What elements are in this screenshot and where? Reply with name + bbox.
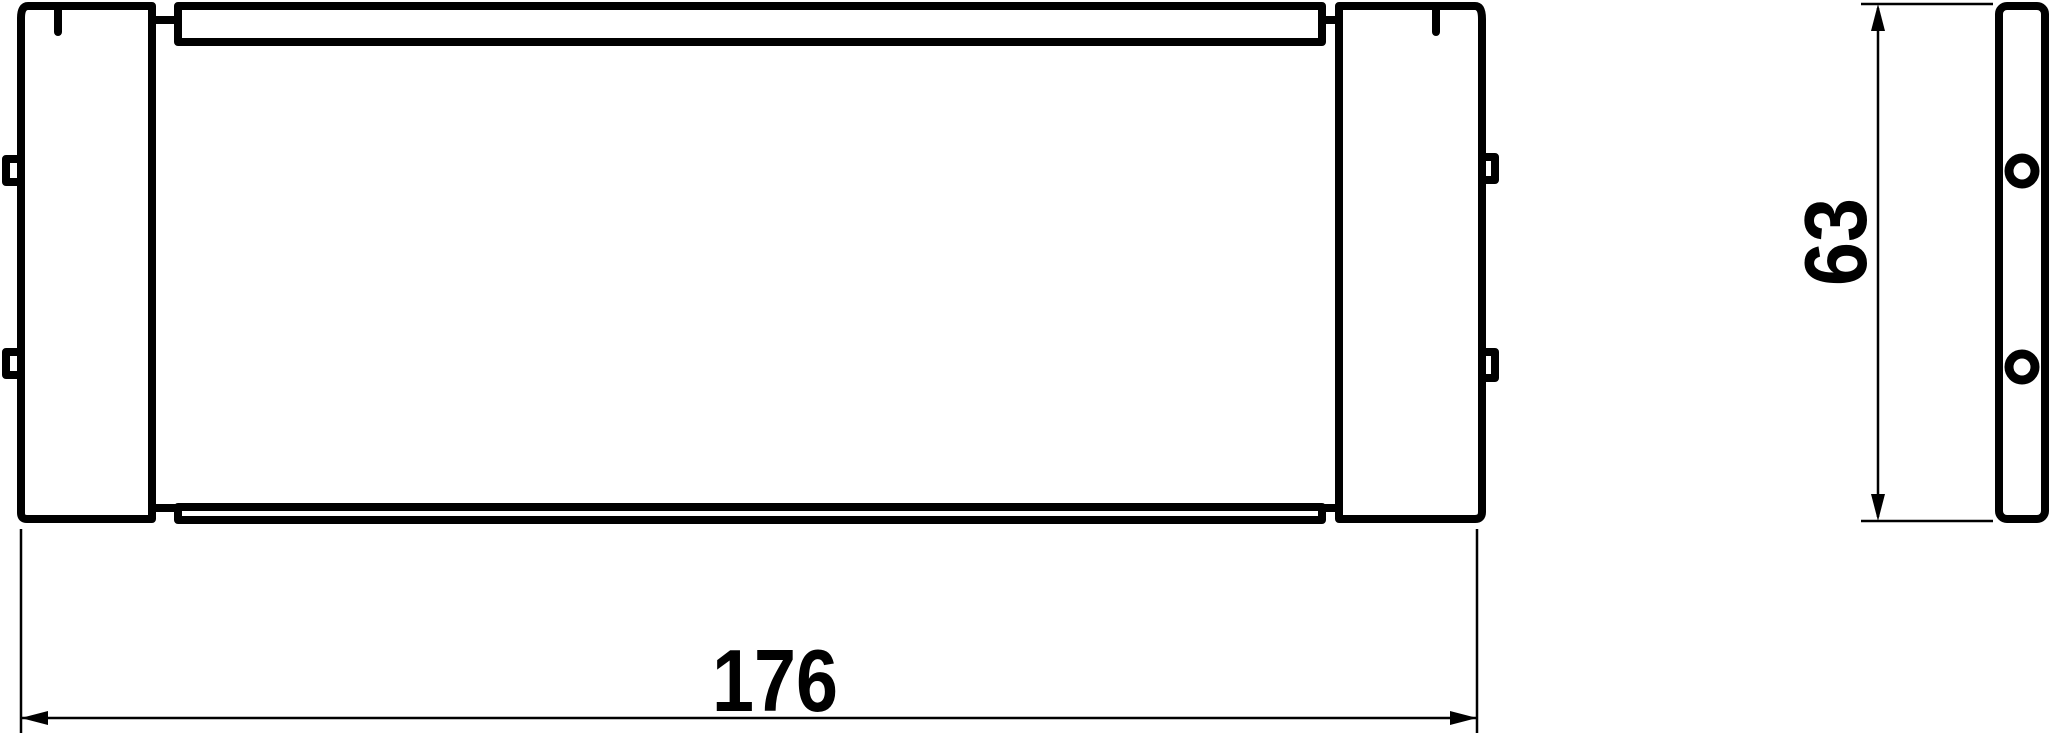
height-dimension: 63 (1786, 4, 1993, 521)
bottom-rail (178, 507, 1322, 520)
technical-drawing-canvas: 176 63 (0, 0, 2052, 735)
arrowhead-down-icon (1871, 494, 1885, 521)
right-end-block (1339, 6, 1482, 519)
side-profile (1999, 6, 2045, 519)
left-end-block (21, 6, 152, 519)
height-dimension-label: 63 (1786, 198, 1885, 286)
width-dimension: 176 (21, 529, 1477, 733)
arrowhead-right-icon (1450, 711, 1477, 725)
front-view (6, 6, 1495, 520)
width-dimension-label: 176 (712, 631, 838, 730)
side-view (1999, 6, 2045, 519)
arrowhead-up-icon (1871, 4, 1885, 31)
mounting-hole-lower (2009, 354, 2035, 380)
drawing-sheet: 176 63 (0, 0, 2052, 735)
arrowhead-left-icon (21, 711, 48, 725)
mounting-hole-upper (2009, 158, 2035, 184)
top-rail (178, 6, 1322, 42)
